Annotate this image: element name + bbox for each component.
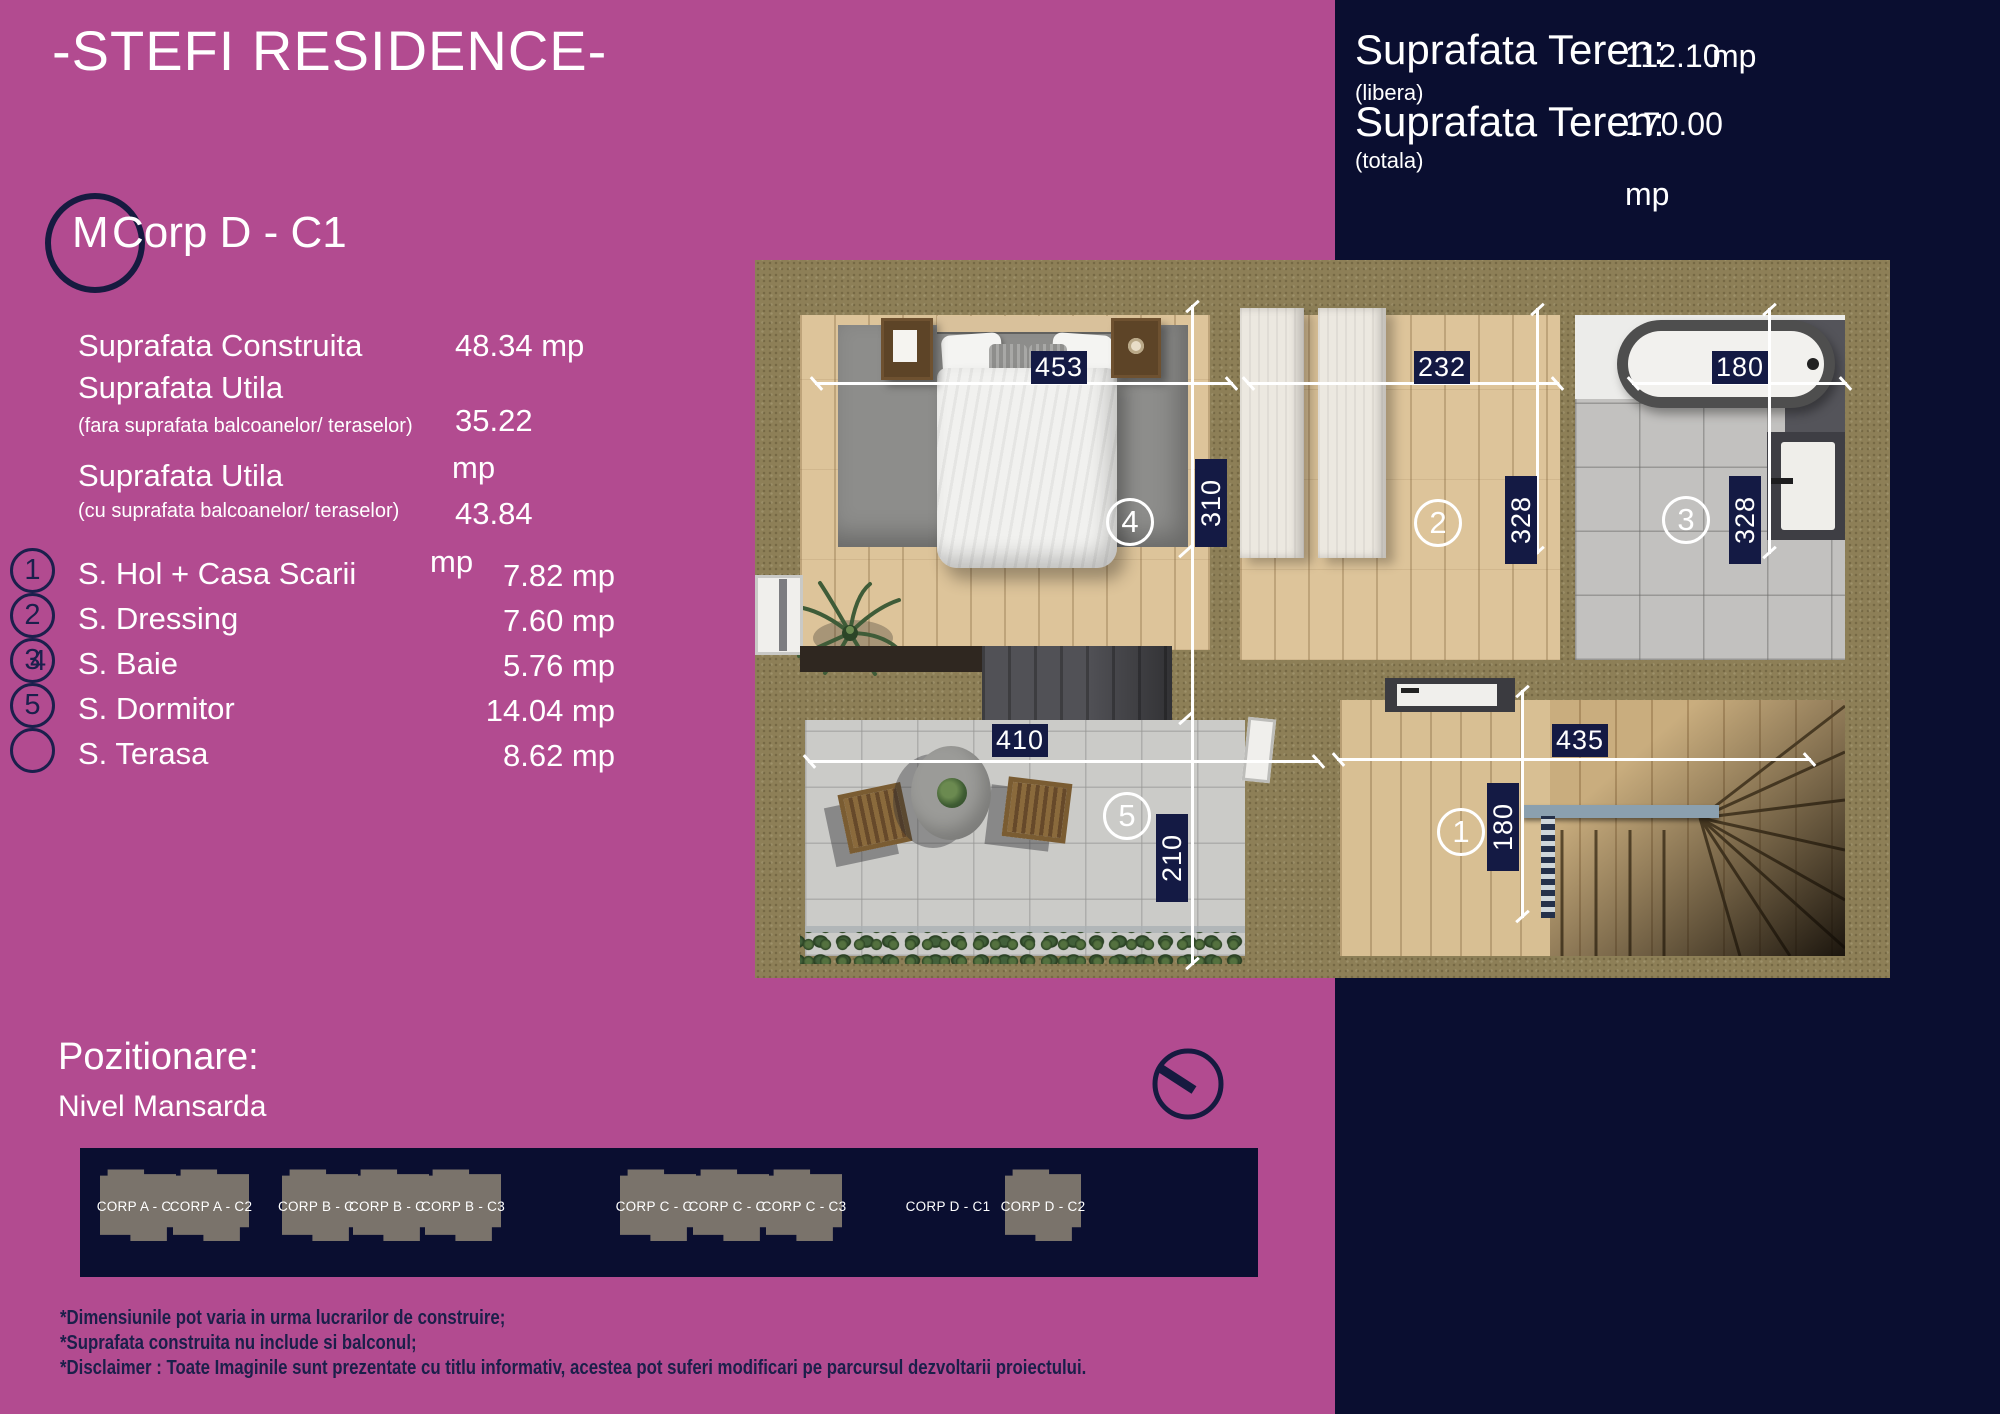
stat-utila-fara-sub: (fara suprafata balcoanelor/ teraselor) [78, 415, 413, 438]
room-4-number: 5 [24, 689, 40, 722]
pozitionare-title: Pozitionare: [58, 1036, 259, 1079]
terrace-chair-right [1002, 776, 1073, 843]
dim-terrace-width: 410 [992, 724, 1048, 757]
room-3-label: S. Baie [78, 646, 178, 682]
page-title: -STEFI RESIDENCE- [52, 18, 607, 83]
plan-marker-terrace: 5 [1103, 792, 1151, 840]
corp-item-d-c1-current[interactable]: CORP D - C1 [910, 1168, 986, 1244]
dim-dressing-height: 328 [1505, 476, 1537, 564]
stat-construita-unit: mp [541, 328, 584, 363]
stat-construita-number: 48.34 [455, 328, 533, 363]
nightstand-book [893, 330, 917, 362]
room-1-number: 1 [24, 554, 40, 587]
stair-railing-hatch [1541, 816, 1555, 918]
room-3-badge: 3 4 [10, 638, 55, 683]
room-2-label: S. Dressing [78, 601, 238, 637]
room-5-label: S. Terasa [78, 736, 208, 772]
nightstand-left [881, 318, 933, 380]
bed-headboard [937, 316, 1117, 332]
room-4-value: 14.04 mp [420, 693, 615, 729]
nightstand-right [1111, 318, 1161, 378]
teren-totala-unit: mp [1625, 176, 1669, 213]
balcony-door [755, 575, 803, 655]
disclaimer-line-3: *Disclaimer : Toate Imaginile sunt preze… [60, 1356, 1086, 1381]
terrace-table-plant [937, 778, 967, 808]
plan-marker-dressing: 2 [1414, 499, 1462, 547]
room-4-badge: 5 [10, 683, 55, 728]
sink-counter [1767, 432, 1845, 540]
room-3-number-alt: 4 [30, 645, 46, 678]
plan-marker-bath: 3 [1662, 496, 1710, 544]
corp-label: CORP B - C3 [415, 1168, 511, 1244]
dim-line-hall-height [1521, 690, 1524, 918]
teren-totala-value: 170.00 [1625, 106, 1723, 143]
corp-item-b-c3[interactable]: CORP B - C3 [425, 1168, 501, 1244]
room-4-label: S. Dormitor [78, 691, 235, 727]
corp-label: CORP D - C2 [995, 1168, 1091, 1244]
sink-faucet [1771, 478, 1793, 484]
room-2-number: 2 [24, 599, 40, 632]
room-1-label: S. Hol + Casa Scarii [78, 556, 356, 592]
corp-item-a-c2[interactable]: CORP A - C2 [173, 1168, 249, 1244]
room-2-badge: 2 [10, 593, 55, 638]
corp-strip: CORP A - C1 CORP A - C2 CORP B - C1 CORP… [80, 1148, 1258, 1277]
dim-bedroom-width: 453 [1031, 351, 1087, 384]
dim-bath-width: 180 [1712, 351, 1768, 384]
stat-construita-value: 48.34 mp [455, 328, 584, 364]
dim-hall-width: 435 [1552, 724, 1608, 757]
teren-libera-unit: mp [1712, 38, 1756, 75]
bed [937, 316, 1117, 568]
dim-terrace-height: 210 [1156, 814, 1188, 902]
stat-construita-label: Suprafata Construita [78, 328, 362, 364]
balcony-pavement [982, 646, 1172, 722]
teren-totala-sub: (totala) [1355, 148, 1423, 174]
floor-plan: 453 232 180 310 328 328 410 435 210 180 … [755, 260, 1890, 978]
room-2-value: 7.60 mp [420, 603, 615, 639]
room-5-value: 8.62 mp [420, 738, 615, 774]
dim-line-bedroom-width [815, 382, 1233, 385]
unit-name: Corp D - C1 [112, 208, 347, 258]
stat-utila-fara-unit: mp [452, 450, 495, 486]
dim-line-bath-height [1768, 308, 1771, 554]
stat-utila-fara-label: Suprafata Utila [78, 370, 283, 406]
compass-icon [1150, 1046, 1226, 1122]
teren-libera-label: Suprafata Teren: [1355, 26, 1665, 74]
corp-label: CORP D - C1 [900, 1168, 996, 1244]
page: Suprafata Teren: 112.10 mp (libera) Supr… [0, 0, 2000, 1414]
hall-door [1242, 717, 1277, 784]
hall-counter-faucet [1401, 688, 1419, 693]
wardrobe-left [1240, 308, 1304, 558]
nightstand-candle [1128, 338, 1144, 354]
wardrobe-right [1318, 308, 1386, 558]
dim-bedroom-height: 310 [1195, 459, 1227, 547]
terrace-hedge [800, 932, 1245, 964]
disclaimers: *Dimensiunile pot varia in urma lucraril… [60, 1306, 1282, 1381]
stat-utila-cu-sub: (cu suprafata balcoanelor/ teraselor) [78, 500, 399, 523]
disclaimer-line-2: *Suprafata construita nu include si balc… [60, 1331, 1086, 1356]
dim-line-dressing-width [1247, 382, 1559, 385]
dim-line-terrace-width [808, 760, 1320, 763]
pozitionare-subtitle: Nivel Mansarda [58, 1090, 266, 1124]
plan-marker-bedroom: 4 [1106, 498, 1154, 546]
dim-hall-height: 180 [1487, 783, 1519, 871]
bedroom-south-wall [800, 646, 982, 672]
dim-line-vertical-left [1191, 305, 1194, 965]
corp-label: CORP C - C3 [756, 1168, 852, 1244]
dim-line-hall-width [1337, 758, 1811, 761]
stat-utila-cu-label: Suprafata Utila [78, 458, 283, 494]
dim-dressing-width: 232 [1414, 351, 1470, 384]
corp-item-c-c3[interactable]: CORP C - C3 [766, 1168, 842, 1244]
teren-libera-value: 112.10 [1625, 38, 1721, 75]
hall-counter [1385, 678, 1515, 712]
sink-basin [1781, 442, 1835, 530]
balcony-door-frame [779, 579, 787, 651]
room-3-value: 5.76 mp [420, 648, 615, 684]
stat-utila-cu-value: 43.84 [455, 496, 533, 532]
stat-utila-fara-value: 35.22 [455, 403, 533, 439]
disclaimer-line-1: *Dimensiunile pot varia in urma lucraril… [60, 1306, 1086, 1331]
teren-totala-label: Suprafata Teren: [1355, 98, 1665, 146]
corp-label: CORP A - C2 [163, 1168, 259, 1244]
bathtub-faucet [1807, 358, 1819, 370]
bed-duvet [937, 368, 1117, 568]
room-1-value: 7.82 mp [420, 558, 615, 594]
corp-item-d-c2[interactable]: CORP D - C2 [1005, 1168, 1081, 1244]
room-1-badge: 1 [10, 548, 55, 593]
plan-marker-hall: 1 [1437, 808, 1485, 856]
room-5-badge [10, 728, 55, 773]
unit-marker-letter: M [72, 208, 109, 258]
dim-bath-height: 328 [1729, 476, 1761, 564]
